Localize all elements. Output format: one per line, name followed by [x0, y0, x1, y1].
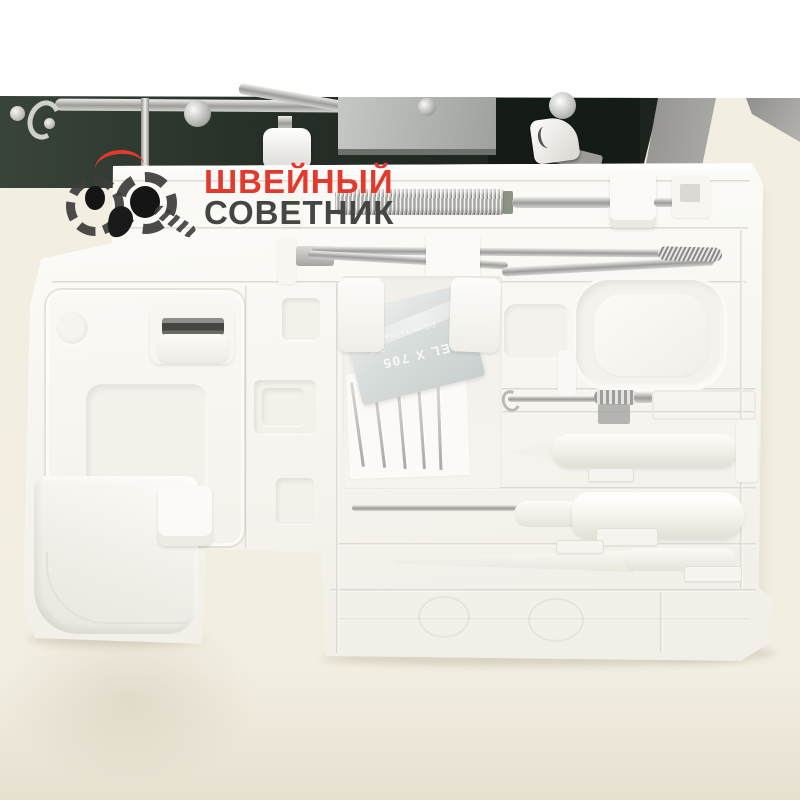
product-photo: EL X 705 B F DE IN TAIWA: [0, 0, 800, 800]
white-roller: [263, 128, 311, 170]
divider-bar: [558, 350, 576, 396]
holder-slot: [680, 184, 700, 202]
tweezers-clamp: [426, 232, 480, 280]
spring-holder-tab: [282, 183, 302, 227]
holder-tab: [588, 468, 634, 482]
white-tool-clamp: [736, 420, 758, 482]
machine-housing-corner: [738, 96, 800, 146]
molded-ridge: [660, 592, 663, 652]
molded-ridge: [338, 543, 756, 546]
large-recess-inner: [594, 294, 708, 376]
holder-tab: [596, 528, 658, 546]
threader-sleeve: [634, 392, 654, 403]
screw-icon: [10, 106, 25, 121]
threader-sleeve: [594, 390, 638, 405]
screw-cap: [184, 100, 211, 127]
needle-case-origin: DE IN TAIWA: [383, 320, 436, 340]
holder-tab: [684, 566, 742, 582]
slot-latch: [158, 334, 228, 362]
backdrop-shading: [0, 668, 800, 800]
coil-spring: [335, 189, 505, 215]
round-boss: [56, 312, 88, 344]
screwdriver-shaft: [352, 505, 522, 511]
needle-bar: [141, 98, 149, 172]
holder-tab: [556, 540, 604, 554]
owl-left-pupil-icon: [85, 186, 105, 210]
tweezers-grip-tip: [658, 246, 722, 262]
background-top-white: [0, 0, 800, 98]
white-tool-body: [552, 434, 738, 468]
needle-case-clip-right: [449, 277, 502, 353]
knob-screw: [549, 92, 576, 119]
threader-pad: [598, 404, 630, 424]
white-tool-point: [506, 442, 556, 460]
spring-rod: [654, 198, 674, 207]
tweezers-holder: [278, 238, 296, 284]
ghost-circle: [418, 596, 470, 638]
molded-cutout: [262, 388, 304, 426]
needle-case-model: EL X 705: [380, 340, 452, 371]
molded-cutout: [276, 478, 314, 524]
needle: [417, 384, 426, 469]
needle-case-clip-left: [338, 278, 384, 352]
molded-cutout: [282, 298, 320, 340]
tool-slot-window: [162, 318, 224, 335]
screw-icon: [418, 98, 436, 116]
spring-rod: [512, 197, 612, 208]
ghost-circle: [528, 598, 584, 642]
molded-ridge: [330, 589, 756, 592]
threader-holder-outline: [652, 390, 756, 420]
mounting-plate: [338, 97, 496, 155]
needle: [437, 385, 443, 470]
spring-clamp: [610, 170, 656, 228]
pocket-clamp: [158, 486, 212, 546]
